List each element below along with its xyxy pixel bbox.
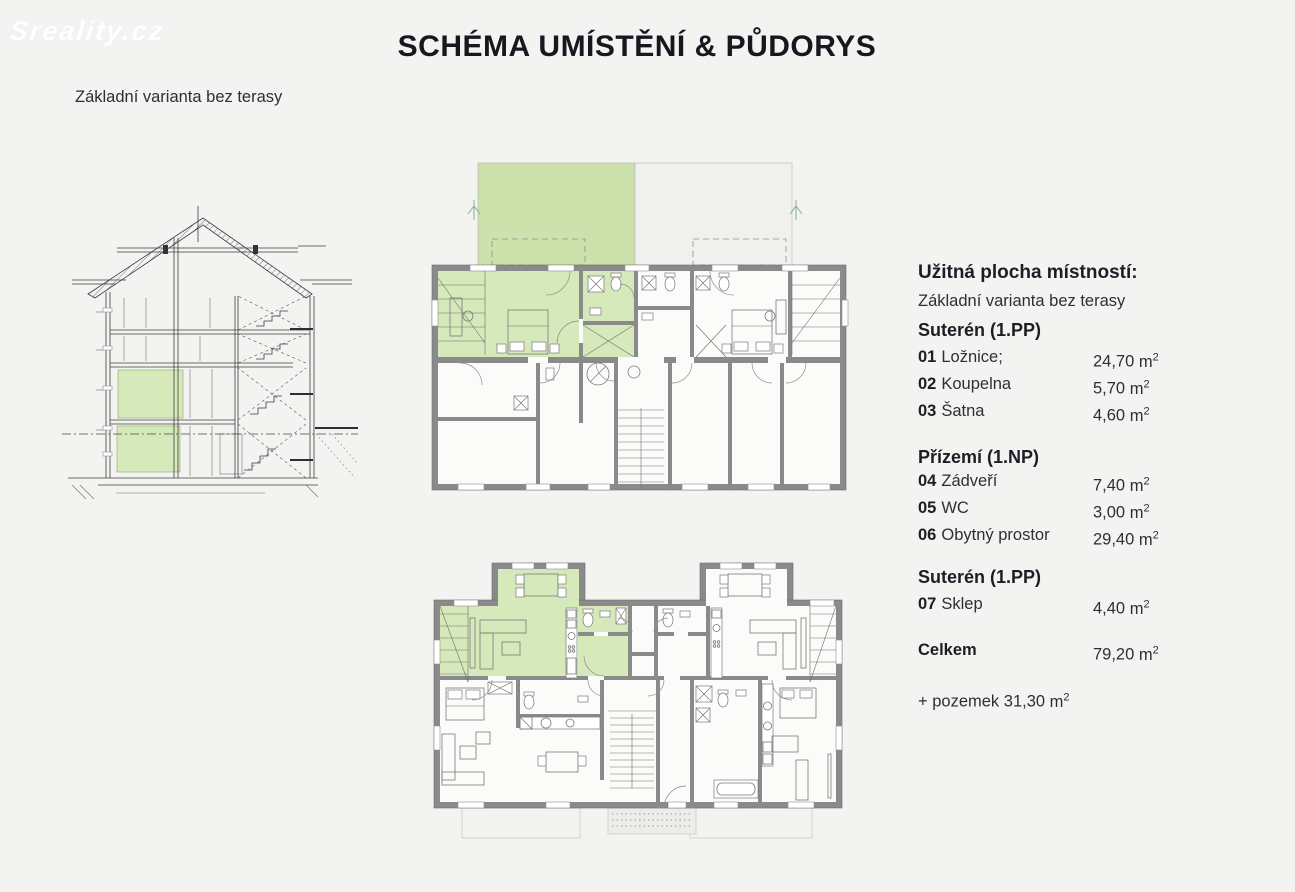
room-area: 29,40 m2 xyxy=(1093,524,1159,551)
area-unit: m2 xyxy=(1139,531,1159,549)
building-cross-section xyxy=(60,202,360,502)
area-info-panel: Užitná plocha místností: Základní varian… xyxy=(918,262,1188,742)
basement-plan-drawing xyxy=(430,158,850,498)
room-row-03: 03Šatna 4,60 m2 xyxy=(918,400,984,422)
room-number: 07 xyxy=(918,595,936,613)
room-area: 4,40 m2 xyxy=(1093,593,1150,620)
sreality-logo: Sreality.cz xyxy=(8,16,166,47)
area-unit: m2 xyxy=(1139,353,1159,371)
room-number: 05 xyxy=(918,499,936,517)
room-row-02: 02Koupelna 5,70 m2 xyxy=(918,373,1011,395)
room-label: Obytný prostor xyxy=(941,526,1049,544)
section-stairs xyxy=(238,296,313,478)
panel-subheading: Základní varianta bez terasy xyxy=(918,290,1125,312)
room-area: 4,60 m2 xyxy=(1093,400,1150,427)
room-number: 04 xyxy=(918,472,936,490)
variant-subtitle: Základní varianta bez terasy xyxy=(75,88,282,107)
floor-plan-ground xyxy=(428,556,858,846)
floor-plan-basement xyxy=(430,158,850,498)
section-title-suteren-1: Suterén (1.PP) xyxy=(918,319,1041,341)
room-label: Sklep xyxy=(941,595,982,613)
panel-heading: Užitná plocha místností: xyxy=(918,262,1138,284)
room-number: 03 xyxy=(918,402,936,420)
area-unit: m2 xyxy=(1130,407,1150,425)
ground-patios xyxy=(462,808,812,838)
room-row-06: 06Obytný prostor 29,40 m2 xyxy=(918,524,1050,546)
total-label: Celkem xyxy=(918,641,977,659)
section-title-suteren-2: Suterén (1.PP) xyxy=(918,566,1041,588)
total-row: Celkem 79,20 m2 xyxy=(918,639,977,661)
section-roof xyxy=(72,206,352,298)
room-label: WC xyxy=(941,499,969,517)
land-addition-area: 31,30 xyxy=(1004,693,1045,711)
area-unit: m2 xyxy=(1130,380,1150,398)
room-area: 7,40 m2 xyxy=(1093,470,1150,497)
section-title-prizemi: Přízemí (1.NP) xyxy=(918,446,1039,468)
room-number: 01 xyxy=(918,348,936,366)
area-unit: m2 xyxy=(1130,477,1150,495)
area-unit: m2 xyxy=(1050,693,1070,711)
page: Sreality.cz SCHÉMA UMÍSTĚNÍ & PŮDORYS Zá… xyxy=(0,0,1295,892)
room-area: 24,70 m2 xyxy=(1093,346,1159,373)
room-area: 3,00 m2 xyxy=(1093,497,1150,524)
area-unit: m2 xyxy=(1139,646,1159,664)
room-row-01: 01Ložnice; 24,70 m2 xyxy=(918,346,1003,368)
room-row-07: 07Sklep 4,40 m2 xyxy=(918,593,983,615)
ground-plan-drawing xyxy=(428,556,858,846)
section-highlight-rooms xyxy=(117,370,183,472)
room-label: Šatna xyxy=(941,402,984,420)
room-area: 5,70 m2 xyxy=(1093,373,1150,400)
room-number: 06 xyxy=(918,526,936,544)
room-label: Ložnice; xyxy=(941,348,1002,366)
room-number: 02 xyxy=(918,375,936,393)
land-addition-label: + pozemek xyxy=(918,693,999,711)
area-unit: m2 xyxy=(1130,600,1150,618)
room-row-04: 04Zádveří 7,40 m2 xyxy=(918,470,997,492)
room-label: Zádveří xyxy=(941,472,997,490)
page-title: SCHÉMA UMÍSTĚNÍ & PŮDORYS xyxy=(398,30,877,64)
land-addition-row: + pozemek 31,30 m2 xyxy=(918,686,1070,713)
room-row-05: 05WC 3,00 m2 xyxy=(918,497,969,519)
cross-section-drawing xyxy=(60,202,360,502)
total-area: 79,20 m2 xyxy=(1093,639,1159,666)
room-label: Koupelna xyxy=(941,375,1011,393)
area-unit: m2 xyxy=(1130,504,1150,522)
